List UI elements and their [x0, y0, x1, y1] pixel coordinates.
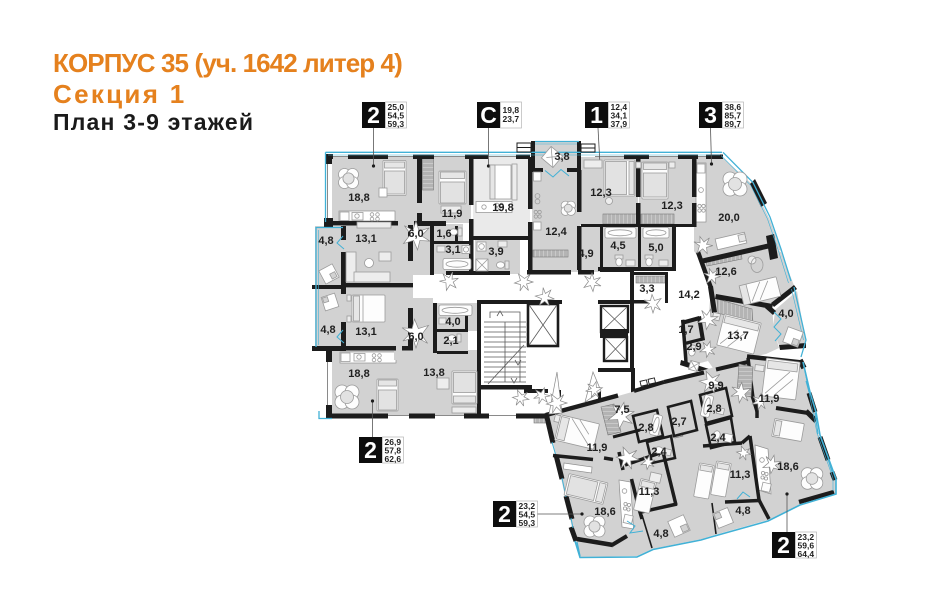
svg-text:2,4: 2,4 — [651, 446, 667, 458]
svg-text:11,9: 11,9 — [587, 442, 608, 454]
svg-text:4,5: 4,5 — [610, 240, 625, 252]
svg-text:62,6: 62,6 — [385, 454, 402, 464]
svg-text:13,1: 13,1 — [355, 233, 376, 245]
svg-text:2,8: 2,8 — [706, 403, 721, 415]
svg-text:1,7: 1,7 — [678, 324, 693, 336]
svg-text:2: 2 — [364, 437, 377, 463]
svg-text:1: 1 — [590, 102, 603, 128]
svg-text:6,0: 6,0 — [408, 331, 423, 343]
svg-text:23,7: 23,7 — [503, 114, 520, 124]
svg-text:4,8: 4,8 — [318, 235, 333, 247]
svg-text:3,3: 3,3 — [639, 283, 654, 295]
svg-text:4,0: 4,0 — [778, 308, 793, 320]
svg-text:4,8: 4,8 — [653, 528, 668, 540]
svg-text:3,8: 3,8 — [554, 151, 569, 163]
svg-text:3,1: 3,1 — [445, 244, 460, 256]
svg-text:2: 2 — [777, 532, 790, 558]
svg-text:6,0: 6,0 — [408, 228, 423, 240]
svg-text:4,8: 4,8 — [735, 505, 750, 517]
svg-text:18,8: 18,8 — [348, 192, 369, 204]
svg-text:64,4: 64,4 — [798, 549, 815, 559]
svg-text:12,3: 12,3 — [590, 187, 611, 199]
svg-text:3,9: 3,9 — [488, 246, 503, 258]
svg-text:План 3-9 этажей: План 3-9 этажей — [53, 109, 254, 135]
svg-text:1,6: 1,6 — [436, 228, 451, 240]
svg-text:11,3: 11,3 — [730, 469, 751, 481]
svg-text:12,6: 12,6 — [715, 266, 736, 278]
svg-text:18,8: 18,8 — [348, 368, 369, 380]
svg-text:19,8: 19,8 — [492, 202, 513, 214]
svg-text:2,4: 2,4 — [710, 432, 726, 444]
svg-text:13,8: 13,8 — [423, 367, 444, 379]
svg-text:13,7: 13,7 — [727, 330, 748, 342]
svg-text:4,0: 4,0 — [445, 316, 460, 328]
svg-text:4,9: 4,9 — [578, 248, 593, 260]
svg-text:2: 2 — [498, 501, 511, 527]
svg-text:2: 2 — [367, 102, 380, 128]
svg-text:4,8: 4,8 — [320, 324, 335, 336]
svg-text:12,3: 12,3 — [661, 200, 682, 212]
svg-text:11,9: 11,9 — [442, 208, 463, 220]
svg-text:37,9: 37,9 — [611, 119, 628, 129]
svg-text:14,2: 14,2 — [678, 289, 699, 301]
svg-text:18,6: 18,6 — [777, 461, 798, 473]
svg-text:11,3: 11,3 — [639, 486, 660, 498]
svg-text:59,3: 59,3 — [519, 518, 536, 528]
svg-text:5,0: 5,0 — [648, 242, 663, 254]
svg-text:С: С — [480, 102, 497, 128]
svg-text:2,7: 2,7 — [671, 416, 686, 428]
svg-text:13,1: 13,1 — [355, 326, 376, 338]
svg-text:20,0: 20,0 — [718, 212, 739, 224]
svg-text:2,8: 2,8 — [638, 422, 653, 434]
svg-text:Секция 1: Секция 1 — [53, 79, 186, 109]
svg-text:18,6: 18,6 — [594, 506, 615, 518]
svg-text:12,4: 12,4 — [545, 226, 567, 238]
svg-text:2,9: 2,9 — [686, 341, 701, 353]
svg-text:11,9: 11,9 — [759, 393, 780, 405]
svg-text:7,5: 7,5 — [614, 404, 629, 416]
svg-text:3: 3 — [704, 102, 717, 128]
svg-text:89,7: 89,7 — [725, 119, 742, 129]
svg-text:59,3: 59,3 — [388, 119, 405, 129]
svg-text:2,1: 2,1 — [443, 335, 458, 347]
svg-text:9,9: 9,9 — [708, 380, 723, 392]
svg-text:КОРПУС 35 (уч. 1642 литер 4): КОРПУС 35 (уч. 1642 литер 4) — [53, 48, 402, 78]
